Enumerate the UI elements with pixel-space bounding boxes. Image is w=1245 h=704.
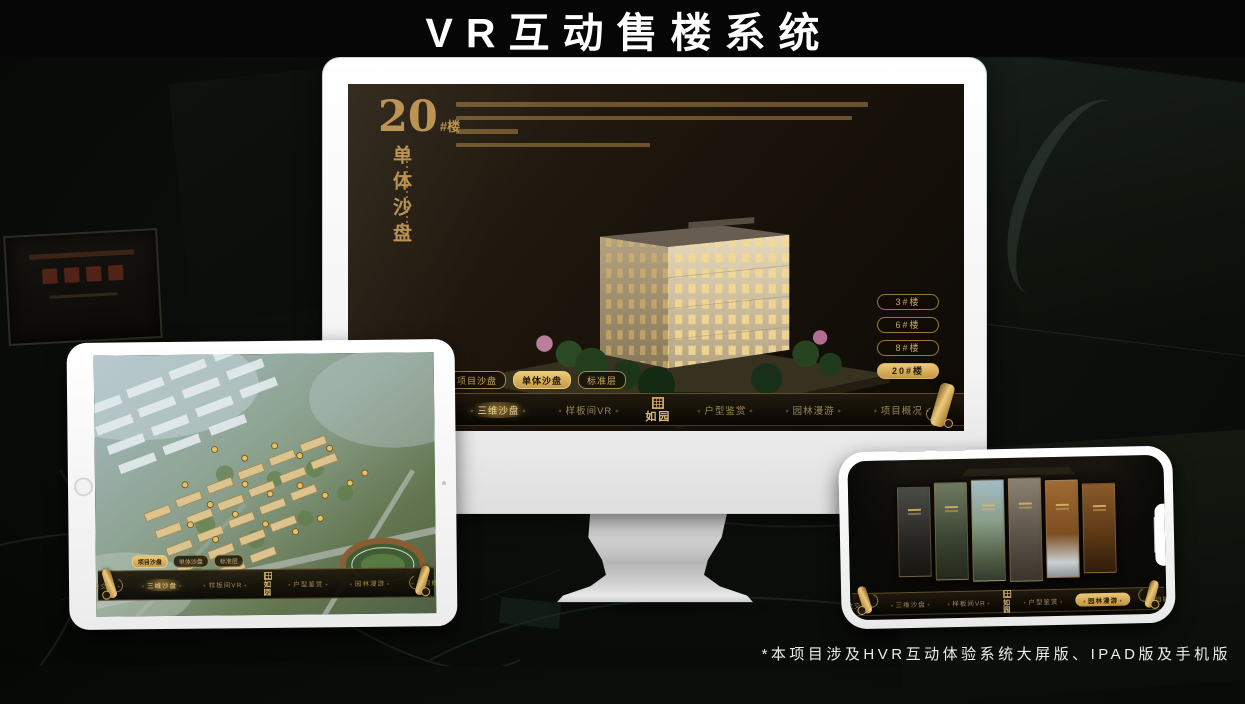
brand-logo: 如园	[1003, 590, 1011, 613]
scroll-ornament-icon[interactable]	[418, 565, 427, 595]
nav-item-3d-sandbox[interactable]: 三维沙盘	[137, 579, 188, 592]
home-button[interactable]	[74, 477, 93, 496]
brand-logo: 如园	[263, 572, 272, 596]
nav-item-unit-plans[interactable]: 户型鉴赏	[691, 402, 759, 418]
phone-device: 区位交通 三维沙盘 样板间VR 如园 户型鉴赏 园林漫游 项目概况	[838, 446, 1176, 630]
brand-logo-text: 如园	[264, 581, 273, 596]
floor-button-20[interactable]: 20#楼	[877, 363, 939, 379]
nav-item-garden-roam[interactable]: 园林漫游	[1076, 592, 1131, 606]
floor-button-3[interactable]: 3#楼	[877, 294, 939, 310]
volume-button[interactable]	[896, 448, 926, 453]
page-title: VR互动售楼系统	[413, 0, 833, 59]
scene-card[interactable]	[897, 487, 932, 578]
scene-card[interactable]	[934, 482, 969, 581]
scene-card[interactable]	[971, 479, 1006, 582]
scroll-ornament-icon[interactable]	[105, 569, 114, 599]
hero-title-vertical: 单体沙盘	[388, 145, 415, 255]
tablet-sub-tabs: 项目沙盘 单体沙盘 标准层	[132, 554, 244, 568]
title-band: VR互动售楼系统	[0, 0, 1245, 57]
hero-building-number: 20	[378, 92, 438, 142]
nav-item-garden-roam[interactable]: 园林漫游	[345, 577, 396, 590]
floor-button-group: 3#楼 6#楼 8#楼 20#楼	[877, 294, 939, 386]
river-shape	[985, 82, 1156, 315]
plaque-text-line	[29, 249, 134, 259]
ruyuan-seal-icon	[652, 397, 664, 409]
nav-item-garden-roam[interactable]: 园林漫游	[780, 402, 848, 418]
tablet-screen: 项目沙盘 单体沙盘 标准层 区位交通 三维沙盘 样板间VR 如园 户型鉴赏 园林…	[94, 352, 437, 617]
nav-item-unit-plans[interactable]: 户型鉴赏	[1019, 594, 1068, 607]
tablet-nav-bar: 区位交通 三维沙盘 样板间VR 如园 户型鉴赏 园林漫游 项目概况	[98, 567, 434, 601]
hero-subtitle-decor	[406, 150, 408, 228]
tab-single-sandbox[interactable]: 单体沙盘	[173, 555, 209, 568]
scroll-ornament-icon[interactable]	[1147, 580, 1157, 608]
scroll-ornament-icon[interactable]	[935, 383, 950, 427]
footnote-text: *本项目涉及HVR互动体验系统大屏版、IPAD版及手机版	[762, 643, 1231, 664]
phone-notch	[1154, 503, 1166, 565]
monitor-stand-shadow	[545, 601, 771, 615]
ruyuan-seal-icon	[1003, 590, 1011, 598]
ruyuan-seal-icon	[264, 572, 272, 580]
nav-item-showroom-vr[interactable]: 样板间VR	[198, 578, 252, 591]
plaque-characters	[7, 263, 158, 286]
brand-logo: 如园	[645, 397, 671, 422]
scene-card-gallery	[897, 470, 1121, 591]
nav-item-unit-plans[interactable]: 户型鉴赏	[283, 577, 334, 590]
monitor-sub-tabs: 项目沙盘 单体沙盘 标准层	[448, 371, 626, 389]
nav-item-showroom-vr[interactable]: 样板间VR	[552, 402, 625, 418]
phone-screen: 区位交通 三维沙盘 样板间VR 如园 户型鉴赏 园林漫游 项目概况	[847, 455, 1166, 621]
tab-single-sandbox[interactable]: 单体沙盘	[513, 371, 571, 389]
nav-item-3d-sandbox[interactable]: 三维沙盘	[886, 597, 935, 610]
volume-button[interactable]	[936, 447, 966, 452]
scene-card[interactable]	[1045, 480, 1080, 579]
floor-button-6[interactable]: 6#楼	[877, 317, 939, 333]
nav-item-3d-sandbox[interactable]: 三维沙盘	[464, 402, 532, 418]
tab-project-sandbox[interactable]: 项目沙盘	[132, 555, 168, 568]
camera-icon	[442, 481, 446, 485]
scroll-ornament-icon[interactable]	[860, 586, 870, 614]
tab-standard-floor[interactable]: 标准层	[578, 371, 626, 389]
brand-logo-text: 如园	[1003, 599, 1011, 613]
tablet-device: 项目沙盘 单体沙盘 标准层 区位交通 三维沙盘 样板间VR 如园 户型鉴赏 园林…	[67, 339, 458, 630]
plaque-text-line	[50, 292, 118, 299]
floor-button-8[interactable]: 8#楼	[877, 340, 939, 356]
award-plaque	[3, 228, 163, 346]
tab-standard-floor[interactable]: 标准层	[214, 554, 244, 567]
tab-project-sandbox[interactable]: 项目沙盘	[448, 371, 506, 389]
nav-item-showroom-vr[interactable]: 样板间VR	[943, 596, 995, 609]
scene-card[interactable]	[1008, 477, 1043, 582]
scene-card[interactable]	[1082, 483, 1117, 574]
brand-logo-text: 如园	[645, 411, 671, 422]
